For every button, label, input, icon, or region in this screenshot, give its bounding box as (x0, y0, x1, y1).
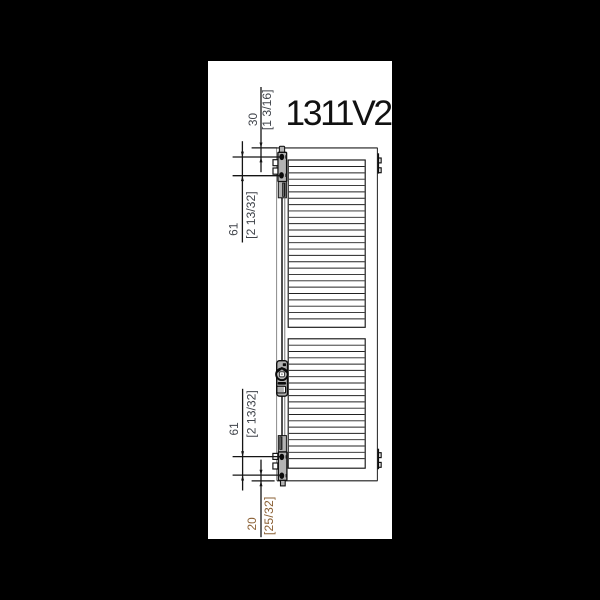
svg-text:[2 13/32]: [2 13/32] (244, 191, 258, 238)
svg-text:[1 3/16]: [1 3/16] (260, 89, 274, 130)
svg-text:61: 61 (226, 223, 240, 236)
svg-text:30: 30 (246, 113, 260, 127)
svg-text:20: 20 (245, 517, 259, 531)
svg-text:[25/32]: [25/32] (262, 496, 276, 535)
svg-text:61: 61 (227, 422, 241, 435)
svg-text:1311V2: 1311V2 (285, 93, 391, 133)
svg-text:[2 13/32]: [2 13/32] (245, 390, 259, 437)
